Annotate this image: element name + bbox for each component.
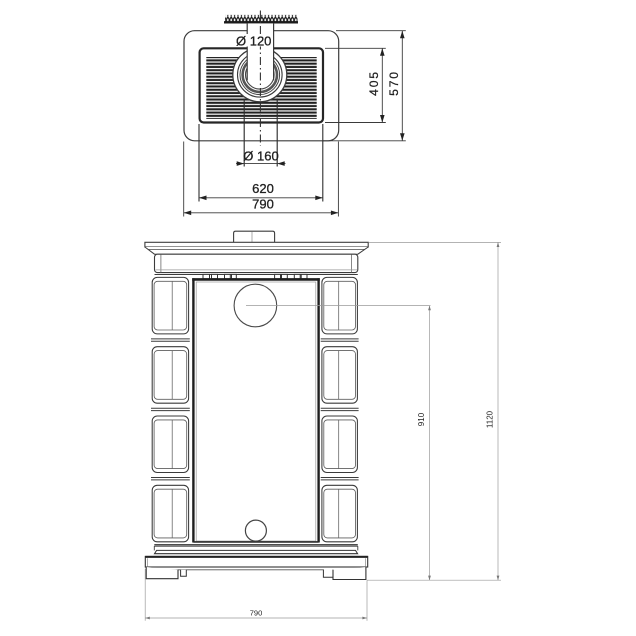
- svg-text:790: 790: [252, 196, 274, 211]
- svg-text:Ø 160: Ø 160: [243, 149, 278, 164]
- svg-text:Ø 120: Ø 120: [236, 33, 271, 48]
- svg-text:1120: 1120: [486, 410, 495, 428]
- svg-text:790: 790: [250, 609, 263, 618]
- svg-text:570: 570: [387, 70, 401, 96]
- svg-text:910: 910: [417, 412, 426, 426]
- svg-text:405: 405: [367, 70, 381, 96]
- svg-text:620: 620: [252, 181, 274, 196]
